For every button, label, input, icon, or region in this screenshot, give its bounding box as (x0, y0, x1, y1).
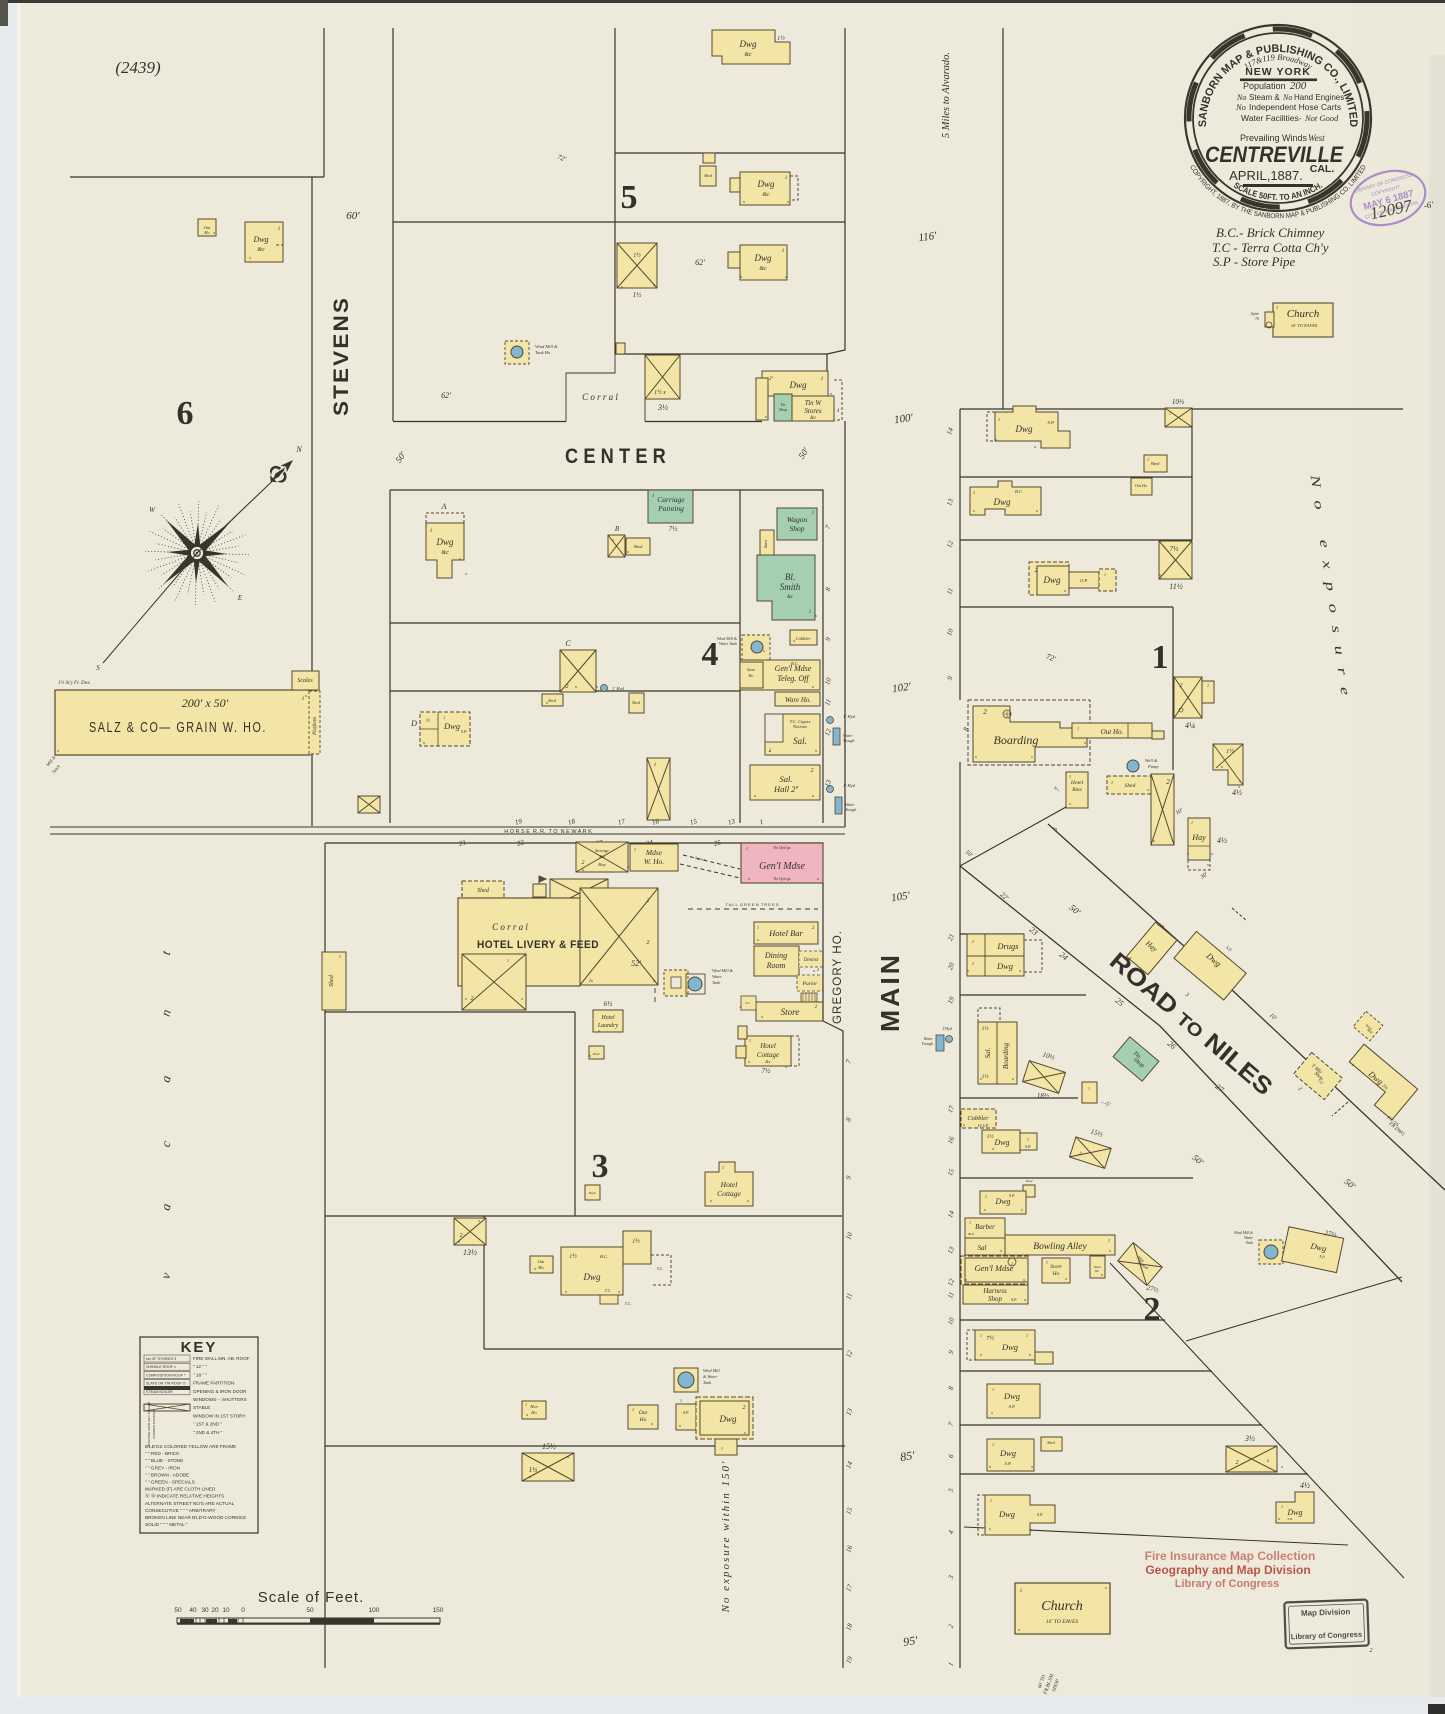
svg-text:C: C (565, 639, 571, 648)
svg-text:1: 1 (1111, 780, 1113, 785)
svg-text:1: 1 (972, 961, 974, 966)
svg-text:x: x (1146, 787, 1149, 792)
svg-text:10½: 10½ (1172, 398, 1185, 406)
svg-text:x: x (967, 1231, 970, 1236)
svg-text:x: x (545, 700, 548, 705)
svg-text:1: 1 (1069, 774, 1071, 779)
svg-text:7½: 7½ (669, 525, 679, 533)
svg-text:x: x (1030, 1464, 1033, 1469)
svg-text:C o r r a l: C o r r a l (582, 392, 618, 402)
svg-text:30: 30 (201, 1607, 209, 1614)
svg-text:40: 40 (189, 1607, 197, 1614)
svg-text:x: x (999, 1248, 1002, 1253)
svg-text:1: 1 (1191, 820, 1193, 825)
svg-text:Shop: Shop (779, 407, 787, 412)
svg-text:x: x (588, 1053, 591, 1058)
svg-text:No: No (1282, 93, 1292, 102)
svg-text:x: x (1206, 862, 1209, 867)
svg-text:95′: 95′ (902, 1633, 919, 1649)
svg-text:Notions: Notions (792, 724, 807, 729)
svg-text:A: A (441, 502, 447, 511)
svg-text:SHINGLE ROOF x: SHINGLE ROOF x (146, 1365, 176, 1369)
svg-text:x: x (786, 199, 789, 204)
svg-text:x: x (768, 748, 771, 753)
svg-text:4¼: 4¼ (1185, 721, 1195, 730)
svg-text:x: x (1083, 740, 1086, 745)
svg-text:x: x (816, 876, 819, 881)
svg-text:Pump: Pump (1147, 764, 1159, 769)
svg-text:Shop: Shop (988, 1295, 1003, 1303)
svg-text:200′ x 50′: 200′ x 50′ (182, 696, 229, 710)
svg-text:14 S.P.: 14 S.P. (978, 1123, 989, 1128)
svg-text:1: 1 (634, 847, 636, 852)
svg-text:Wind Mill: Wind Mill (703, 1368, 720, 1373)
svg-text:" " BROWN - ADOBE: " " BROWN - ADOBE (145, 1472, 189, 1477)
svg-text:5 Miles to Alvarado.: 5 Miles to Alvarado. (941, 52, 952, 138)
svg-text:1: 1 (782, 249, 785, 254)
svg-text:x: x (742, 199, 745, 204)
svg-text:Bl.: Bl. (785, 572, 795, 582)
svg-text:x: x (1029, 1527, 1032, 1532)
svg-text:Ho: Ho (639, 1417, 647, 1423)
svg-text:No OF STORIES 3: No OF STORIES 3 (146, 1357, 176, 1361)
svg-text:x: x (458, 556, 461, 561)
svg-text:x: x (743, 1430, 746, 1435)
svg-text:Store: Store (781, 1007, 800, 1017)
svg-text:x: x (792, 638, 795, 643)
svg-text:x: x (988, 1526, 991, 1531)
svg-text:Ho: Ho (598, 854, 605, 859)
svg-text:Dwg: Dwg (443, 721, 460, 731)
svg-text:1: 1 (722, 1165, 724, 1170)
svg-text:Stores: Stores (804, 407, 822, 415)
svg-text:Dwg: Dwg (993, 1138, 1009, 1147)
svg-text:x: x (784, 1064, 787, 1069)
svg-text:Shed: Shed (329, 974, 335, 987)
svg-text:Water Facilities-: Water Facilities- (1241, 113, 1302, 123)
svg-text:x: x (1028, 1352, 1031, 1357)
svg-text:Dwg: Dwg (582, 1272, 601, 1282)
svg-text:Shed: Shed (593, 1052, 600, 1056)
svg-text:" " GREY - IRON: " " GREY - IRON (145, 1465, 180, 1470)
svg-text:&c: &c (257, 247, 265, 253)
svg-text:STABLE: STABLE (193, 1405, 210, 1410)
svg-text:x: x (988, 1464, 991, 1469)
svg-text:Library of Congress: Library of Congress (1175, 1578, 1280, 1590)
svg-text:Carriage: Carriage (657, 495, 685, 504)
svg-text:Hotel: Hotel (759, 1042, 776, 1050)
svg-text:Scale of Feet.: Scale of Feet. (258, 1589, 365, 1606)
svg-text:x: x (991, 1146, 994, 1151)
svg-text:1: 1 (1108, 1238, 1110, 1243)
svg-text:B.C.: B.C. (1015, 489, 1023, 494)
svg-text:Tank: Tank (1246, 1241, 1254, 1245)
svg-text:x: x (747, 1059, 750, 1064)
svg-text:1: 1 (652, 494, 655, 499)
svg-text:1: 1 (973, 490, 975, 495)
svg-text:SLATE OR TIN ROOF O: SLATE OR TIN ROOF O (146, 1382, 186, 1386)
svg-text:1: 1 (992, 1442, 994, 1447)
svg-text:Fіrе Іnsurance Map Collection: Fіrе Іnsurance Map Collection (1145, 1549, 1316, 1563)
svg-text:x: x (422, 740, 425, 745)
svg-text:x: x (460, 892, 463, 897)
svg-text:x: x (626, 864, 629, 869)
svg-text:x: x (617, 1289, 620, 1294)
svg-text:6½: 6½ (604, 1000, 614, 1008)
svg-text:Tank: Tank (703, 1380, 711, 1385)
svg-text:50: 50 (306, 1607, 314, 1614)
svg-text:Gen′l Mdse: Gen′l Mdse (975, 1263, 1014, 1273)
svg-text:MARKED (F) ARE CLOTH LINED: MARKED (F) ARE CLOTH LINED (145, 1487, 216, 1492)
svg-text:Wind Mill &: Wind Mill & (1234, 1231, 1253, 1235)
svg-text:STEVENS: STEVENS (330, 296, 353, 416)
svg-text:x: x (753, 793, 756, 798)
svg-text:Rms: Rms (1071, 787, 1081, 793)
svg-text:BROKEN LINE NEAR B'LD'G-WOOD C: BROKEN LINE NEAR B'LD'G-WOOD CORNICE (145, 1515, 246, 1520)
svg-text:6: 6 (177, 395, 194, 432)
svg-text:2: 2 (743, 1405, 746, 1411)
svg-text:1: 1 (809, 610, 812, 615)
svg-text:2: 2 (1035, 568, 1038, 574)
svg-text:B: B (615, 525, 620, 533)
svg-text:2: 2 (1144, 1291, 1161, 1328)
svg-text:x: x (581, 867, 584, 872)
svg-text:Hotel: Hotel (600, 1015, 615, 1021)
svg-text:1: 1 (430, 529, 433, 534)
svg-text:1: 1 (507, 958, 509, 963)
svg-text:2: 2 (1236, 1460, 1239, 1466)
svg-text:Dwg: Dwg (435, 537, 454, 547)
svg-text:3: 3 (592, 1148, 609, 1185)
svg-text:1½: 1½ (569, 1253, 577, 1260)
svg-text:1½: 1½ (1226, 748, 1234, 755)
svg-text:x: x (972, 508, 975, 513)
svg-text:Ⓥ Ⓞ INDICATE RELATIVE HEIGHTS: Ⓥ Ⓞ INDICATE RELATIVE HEIGHTS (145, 1493, 224, 1500)
svg-text:150: 150 (433, 1607, 444, 1614)
svg-text:x: x (1238, 778, 1241, 783)
svg-text:No: No (1236, 93, 1246, 102)
svg-text:x: x (990, 1410, 993, 1415)
svg-text:1: 1 (1169, 411, 1171, 416)
svg-text:APRIL,1887.: APRIL,1887. (1229, 168, 1303, 183)
svg-text:x: x (1022, 1277, 1025, 1282)
svg-text:1½ St'y Fr. Dws: 1½ St'y Fr. Dws (58, 681, 90, 686)
svg-text:Shed: Shed (1151, 461, 1160, 466)
svg-text:T A L L G R E E N T R E E S: T A L L G R E E N T R E E S (725, 902, 778, 907)
svg-text:2º: 2º (769, 376, 774, 382)
svg-text:x: x (1100, 1272, 1103, 1277)
svg-text:x: x (652, 978, 655, 983)
svg-text:7½: 7½ (762, 1067, 772, 1075)
svg-text:1: 1 (980, 1333, 982, 1338)
svg-text:x: x (764, 414, 767, 419)
svg-text:1½: 1½ (777, 35, 785, 42)
svg-text:x: x (747, 876, 750, 881)
svg-text:x: x (520, 996, 523, 1001)
svg-text:&c: &c (787, 595, 794, 600)
svg-text:Map Division: Map Division (1301, 1607, 1351, 1618)
svg-text:O.P.: O.P. (1080, 578, 1088, 583)
svg-text:1: 1 (749, 1038, 751, 1043)
svg-text:x: x (994, 437, 997, 442)
svg-text:x: x (1152, 838, 1155, 843)
svg-text:x: x (248, 255, 251, 260)
svg-text:Out: Out (639, 1410, 648, 1416)
svg-text:x: x (709, 1198, 712, 1203)
svg-text:1: 1 (612, 538, 614, 543)
svg-text:Hay: Hay (1191, 833, 1206, 842)
svg-text:1: 1 (812, 511, 815, 516)
svg-text:4½: 4½ (1232, 788, 1242, 797)
svg-text:Wagon: Wagon (787, 515, 808, 524)
svg-text:1½: 1½ (982, 1025, 989, 1032)
svg-text:Tank: Tank (712, 980, 720, 985)
svg-text:x: x (533, 1266, 536, 1271)
svg-text:Gen′l Mdse: Gen′l Mdse (759, 861, 805, 872)
svg-text:B.C.: B.C. (791, 661, 799, 666)
svg-text:Dentist: Dentist (803, 958, 819, 963)
svg-text:2: 2 (1370, 1648, 1373, 1654)
svg-text:x: x (1158, 572, 1161, 577)
svg-text:T.C.: T.C. (745, 1001, 751, 1005)
svg-text:Cobbler: Cobbler (796, 636, 811, 641)
svg-text:Barber: Barber (975, 1223, 995, 1231)
svg-text:1: 1 (985, 1194, 987, 1199)
svg-text:Hotel: Hotel (1070, 780, 1084, 786)
svg-text:S.P.: S.P. (969, 1232, 975, 1236)
svg-text:2: 2 (566, 684, 569, 690)
svg-text:T.C.: T.C. (625, 1301, 632, 1306)
svg-text:x: x (1018, 968, 1021, 973)
svg-text:S.P.: S.P. (1009, 1404, 1016, 1409)
svg-text:1: 1 (1207, 683, 1209, 688)
svg-text:x: x (979, 1352, 982, 1357)
svg-text:Dwg: Dwg (753, 253, 772, 263)
svg-text:1: 1 (1147, 457, 1149, 462)
svg-text:x: x (1104, 1585, 1107, 1590)
svg-text:Dwg: Dwg (1286, 1508, 1302, 1517)
svg-text:1: 1 (972, 939, 974, 944)
svg-text:Scales: Scales (297, 678, 313, 684)
svg-text:x: x (1023, 1297, 1026, 1302)
svg-text:&c: &c (744, 52, 752, 58)
svg-text:&c: &c (759, 266, 767, 272)
svg-text:4½: 4½ (1300, 1481, 1310, 1490)
svg-text:x: x (1108, 1248, 1111, 1253)
svg-text:Ho: Ho (537, 1265, 544, 1270)
svg-text:Laundry: Laundry (597, 1023, 619, 1029)
svg-text:Shed: Shed (548, 698, 557, 703)
svg-text:x: x (762, 648, 765, 653)
svg-text:x: x (983, 1207, 986, 1212)
svg-text:16′ TO EAVES: 16′ TO EAVES (1046, 1619, 1079, 1625)
svg-text:SOLID " " " METAL ": SOLID " " " METAL " (145, 1522, 188, 1527)
svg-text:1: 1 (278, 227, 281, 232)
svg-text:1: 1 (1046, 1260, 1048, 1265)
svg-text:x: x (811, 793, 814, 798)
svg-text:x: x (1210, 851, 1213, 856)
svg-text:S.P.: S.P. (683, 1410, 689, 1415)
svg-text:Harness: Harness (982, 1287, 1007, 1295)
svg-text:x: x (784, 274, 787, 279)
svg-text:2: 2 (582, 860, 585, 866)
svg-text:OPENING & IRON DOOR: OPENING & IRON DOOR (193, 1389, 247, 1394)
svg-text:Ho: Ho (203, 230, 210, 235)
svg-text:1: 1 (1152, 639, 1169, 676)
svg-text:1½: 1½ (633, 252, 641, 259)
svg-text:Dwg: Dwg (1014, 424, 1033, 434)
svg-text:Dwg: Dwg (738, 39, 757, 49)
svg-text:Drugs: Drugs (996, 941, 1019, 951)
svg-text:C o r r a l: C o r r a l (492, 922, 528, 932)
svg-text:&c: &c (810, 416, 817, 421)
svg-text:2: 2 (1011, 1261, 1013, 1266)
svg-text:1: 1 (821, 377, 824, 382)
svg-text:Storage: Storage (595, 848, 609, 853)
svg-text:1½ x: 1½ x (654, 389, 666, 396)
svg-text:70: 70 (1255, 316, 1259, 321)
svg-text:x: x (1063, 588, 1066, 593)
svg-text:x: x (574, 684, 577, 689)
svg-text:Store: Store (1050, 1264, 1062, 1270)
svg-text:x: x (468, 738, 471, 743)
svg-text:Sal.: Sal. (984, 1047, 992, 1058)
svg-text:x: x (678, 1423, 681, 1428)
svg-text:Out: Out (538, 1259, 545, 1264)
svg-text:x: x (756, 937, 759, 942)
svg-text:13½: 13½ (463, 1248, 477, 1257)
svg-text:85′: 85′ (899, 1448, 916, 1464)
svg-text:Shed: Shed (589, 1191, 596, 1195)
svg-text:Shed: Shed (704, 173, 713, 178)
svg-text:S.P.: S.P. (1287, 1517, 1293, 1521)
svg-text:x: x (979, 1076, 982, 1081)
svg-text:20: 20 (211, 1607, 219, 1614)
svg-text:16′ TO EAVES: 16′ TO EAVES (1291, 323, 1318, 328)
svg-text:FIRE WALL 6IN. AB. ROOF: FIRE WALL 6IN. AB. ROOF (193, 1356, 250, 1361)
svg-text:Population: Population (1243, 81, 1286, 91)
svg-text:E: E (237, 594, 243, 602)
svg-text:2: 2 (1166, 778, 1170, 786)
svg-text:Smith: Smith (780, 582, 801, 592)
svg-text:Well &: Well & (1145, 758, 1158, 763)
svg-text:1½: 1½ (987, 1133, 994, 1140)
svg-text:x: x (477, 1218, 480, 1223)
svg-text:x: x (525, 1412, 528, 1417)
svg-text:B.C.- Brick Chimney: B.C.- Brick Chimney (1216, 225, 1325, 240)
svg-text:Independent Hose Carts: Independent Hose Carts (1249, 102, 1341, 112)
svg-text:Sal.: Sal. (793, 736, 807, 746)
svg-text:1: 1 (302, 697, 305, 702)
svg-text:W. Ho.: W. Ho. (644, 857, 664, 866)
svg-text:1: 1 (1020, 1589, 1023, 1594)
svg-text:S.P.: S.P. (1048, 420, 1055, 425)
svg-text:1: 1 (992, 1387, 994, 1392)
svg-text:Trough: Trough (845, 807, 856, 812)
svg-text:1: 1 (969, 1220, 971, 1225)
svg-text:x: x (1064, 1276, 1067, 1281)
svg-text:x: x (1280, 1464, 1283, 1469)
svg-text:x: x (746, 1198, 749, 1203)
svg-text:& Water: & Water (703, 1374, 718, 1379)
svg-text:x: x (829, 391, 832, 396)
svg-text:Shed: Shed (1026, 1179, 1033, 1183)
svg-text:T.C.: T.C. (657, 1266, 664, 1271)
svg-text:Hen: Hen (529, 1404, 538, 1409)
svg-text:1: 1 (680, 1398, 682, 1403)
svg-text:STEAM BOILER: STEAM BOILER (146, 1390, 173, 1394)
svg-text:Tank Ho: Tank Ho (535, 350, 551, 355)
svg-text:x: x (974, 754, 977, 759)
svg-text:Teleg. Off: Teleg. Off (777, 674, 810, 683)
svg-text:B'LD'GS COLORED YELLOW ARE FRA: B'LD'GS COLORED YELLOW ARE FRAME (145, 1444, 236, 1449)
svg-text:SALZ & CO— GRAIN W. HO.: SALZ & CO— GRAIN W. HO. (89, 719, 267, 736)
svg-text:B.C.: B.C. (600, 1254, 608, 1259)
svg-text:H O R S E R. R. T O N E W A: H O R S E R. R. T O N E W A R K (504, 829, 592, 835)
svg-text:Shop: Shop (790, 524, 805, 533)
svg-text:No Op'n'gs: No Op'n'gs (773, 877, 791, 881)
svg-text:Ware Ho.: Ware Ho. (785, 696, 812, 704)
svg-text:Out Ho.: Out Ho. (1101, 728, 1124, 736)
svg-text:2: 2 (1180, 683, 1183, 689)
svg-text:T.C - Terra Cotta Ch'y: T.C - Terra Cotta Ch'y (1212, 240, 1329, 255)
svg-text:x: x (304, 693, 307, 698)
svg-text:x: x (1186, 851, 1189, 856)
svg-text:1: 1 (632, 1407, 634, 1412)
svg-text:" 12 " ": " 12 " " (193, 1364, 207, 1369)
svg-text:1′Hyd: 1′Hyd (942, 1026, 953, 1031)
svg-text:4½: 4½ (1217, 836, 1227, 845)
svg-text:1: 1 (785, 176, 788, 181)
svg-text:4: 4 (702, 636, 719, 673)
svg-text:KEY: KEY (181, 1339, 218, 1356)
svg-text:x: x (962, 1122, 965, 1127)
svg-text:x: x (1011, 1076, 1014, 1081)
svg-text:No exposure within 150′: No exposure within 150′ (720, 1460, 732, 1614)
svg-text:Shed: Shed (477, 888, 490, 894)
svg-text:½: ½ (426, 719, 430, 724)
svg-text:Geography and Map Division: Geography and Map Division (1145, 1563, 1310, 1577)
svg-text:x: x (457, 1239, 460, 1244)
svg-text:x: x (814, 613, 817, 618)
svg-text:Dwg: Dwg (756, 179, 775, 189)
svg-text:x: x (650, 1421, 653, 1426)
svg-text:NEW YORK: NEW YORK (1245, 66, 1311, 78)
svg-text:2: 2 (983, 708, 987, 716)
svg-text:1: 1 (998, 417, 1000, 422)
svg-text:Cobbler: Cobbler (967, 1115, 989, 1122)
svg-text:" 1ST & 2ND ": " 1ST & 2ND " (193, 1422, 222, 1427)
svg-text:1: 1 (746, 846, 748, 851)
svg-text:Cottage: Cottage (717, 1189, 741, 1198)
svg-text:x: x (1220, 764, 1223, 769)
svg-text:Not Good: Not Good (1304, 113, 1339, 123)
svg-text:x: x (626, 549, 629, 554)
svg-text:Hand Engines: Hand Engines (1294, 93, 1344, 102)
svg-text:x: x (814, 748, 817, 753)
svg-text:1: 1 (1088, 1086, 1090, 1091)
svg-text:S.P.: S.P. (1011, 1297, 1017, 1302)
svg-text:1: 1 (525, 1402, 527, 1407)
svg-text:Water: Water (1244, 1236, 1253, 1240)
svg-text:Hall 2º: Hall 2º (773, 784, 798, 794)
svg-text:2: 2 (647, 898, 650, 904)
svg-text:Ho: Ho (1094, 1269, 1099, 1273)
svg-text:Dining: Dining (764, 951, 787, 960)
svg-text:CAL.: CAL. (1310, 163, 1335, 175)
svg-text:Room: Room (766, 961, 786, 970)
svg-text:x: x (212, 230, 215, 235)
